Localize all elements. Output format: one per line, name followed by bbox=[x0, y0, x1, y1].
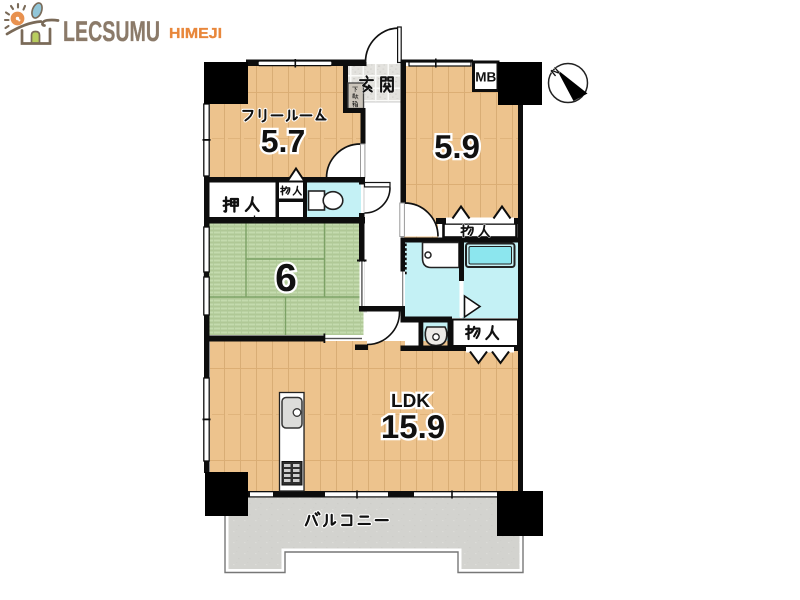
svg-text:5.7: 5.7 bbox=[261, 123, 305, 159]
svg-text:LECSUMU: LECSUMU bbox=[63, 16, 160, 48]
svg-text:6: 6 bbox=[275, 257, 297, 300]
svg-text:HIMEJI: HIMEJI bbox=[169, 26, 222, 42]
svg-text:15.9: 15.9 bbox=[381, 408, 445, 445]
svg-text:MB: MB bbox=[475, 70, 496, 85]
svg-text:5.9: 5.9 bbox=[434, 128, 480, 165]
